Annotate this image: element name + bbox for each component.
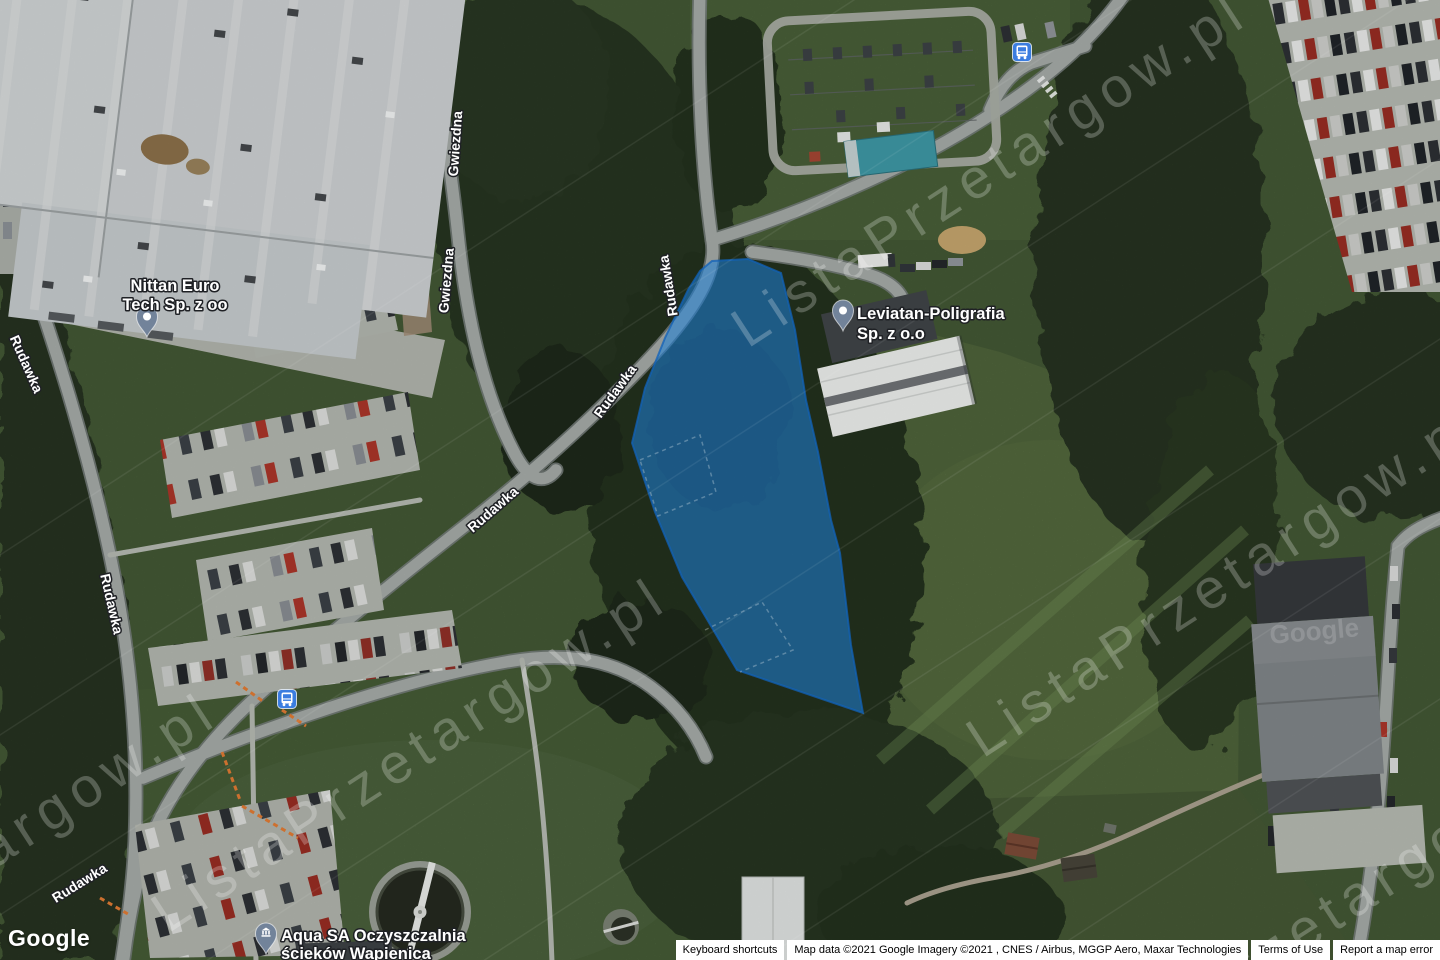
keyboard-shortcuts-button[interactable]: Keyboard shortcuts <box>676 940 785 960</box>
poi-label-leviatan-line1[interactable]: Leviatan-Poligrafia <box>857 305 1005 323</box>
google-logo[interactable]: Google <box>8 925 90 952</box>
poi-label-nittan-line1[interactable]: Nittan Euro <box>131 277 220 295</box>
bus-stop-icon[interactable] <box>278 690 297 709</box>
poi-label-aqua-line1[interactable]: Aqua SA Oczyszczalnia <box>281 927 466 945</box>
report-map-error-link[interactable]: Report a map error <box>1333 940 1440 960</box>
satellite-map[interactable]: ListaPrzetargow.pl ListaPrzetargow.pl Li… <box>0 0 1440 960</box>
poi-label-leviatan-line2[interactable]: Sp. z o.o <box>857 325 925 343</box>
map-viewport: ListaPrzetargow.pl ListaPrzetargow.pl Li… <box>0 0 1440 960</box>
map-data-attribution: Map data ©2021 Google Imagery ©2021 , CN… <box>787 940 1248 960</box>
attribution-bar: Keyboard shortcuts Map data ©2021 Google… <box>673 940 1440 960</box>
poi-label-nittan-line2[interactable]: Tech Sp. z oo <box>122 296 227 314</box>
bus-stop-icon[interactable] <box>1013 43 1032 62</box>
terms-of-use-link[interactable]: Terms of Use <box>1251 940 1330 960</box>
poi-label-aqua-line2[interactable]: ścieków Wapienica <box>281 945 432 960</box>
